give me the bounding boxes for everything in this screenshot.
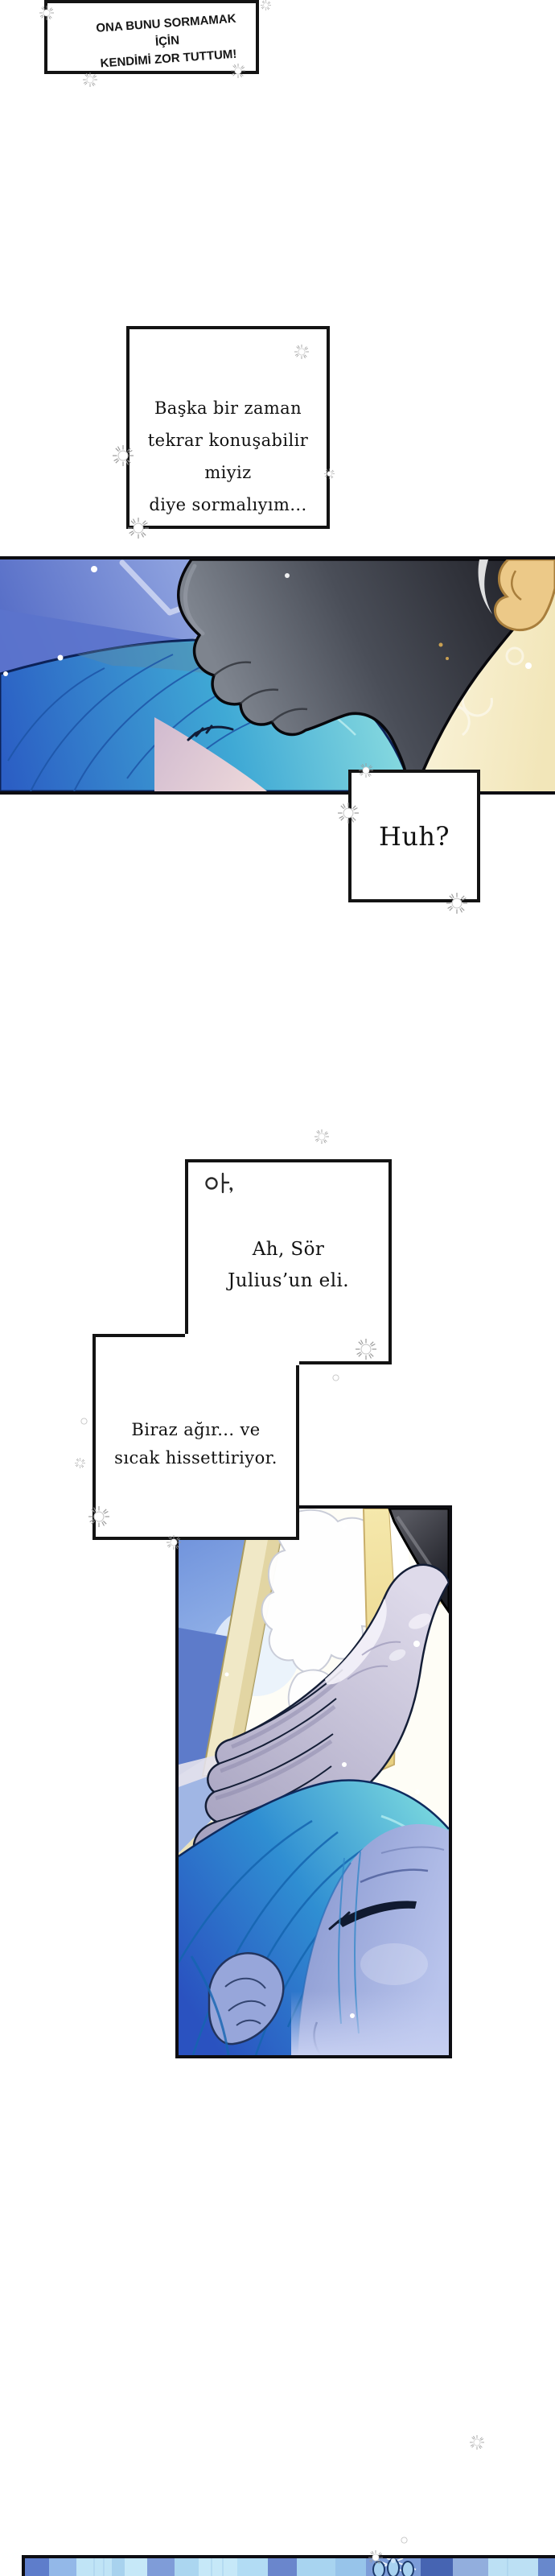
cheek-highlight: [360, 1943, 428, 1985]
thought-julius-text: Ah, Sör Julius’un eli.: [185, 1234, 392, 1297]
sparkle-icon: [80, 1418, 88, 1425]
sparkle-icon: [338, 803, 359, 824]
sparkle-icon: [401, 2537, 408, 2544]
sparkle-icon: [314, 1129, 329, 1144]
panel-3-scene: [25, 2558, 555, 2576]
panel-1-scene: [0, 559, 555, 791]
sparkle-icon: [332, 1374, 339, 1381]
panel-2-artwork: [175, 1505, 452, 2058]
sparkle-icon: [231, 64, 245, 78]
sparkle-icon: [166, 1535, 181, 1550]
sparkle-icon: [359, 763, 373, 778]
sparkle-icon: [294, 345, 309, 359]
dialogue-line: sıcak hissettiriyor.: [92, 1444, 299, 1472]
narration-box: ONA BUNU SORMAMAK İÇİN KENDİMİ ZOR TUTTU…: [44, 0, 259, 74]
dialogue-line: Başka bir zaman: [129, 392, 327, 424]
sparkle-icon: [356, 1339, 376, 1360]
comic-page: ONA BUNU SORMAMAK İÇİN KENDİMİ ZOR TUTTU…: [0, 0, 555, 2576]
sparkle-icon: [470, 2435, 484, 2450]
dialogue-line: Julius’un eli.: [185, 1265, 392, 1297]
bead-top: [391, 2558, 396, 2563]
speech-box-huh: Huh?: [348, 770, 480, 902]
sparkle-icon: [261, 0, 271, 10]
sparkle-icon: [39, 6, 54, 20]
sparkle-icon: [324, 469, 335, 479]
panel-3-artwork: [22, 2555, 555, 2576]
dialogue-line: Huh?: [379, 821, 450, 852]
sparkle-icon: [368, 2550, 383, 2565]
sparkle-icon: [83, 72, 97, 87]
dialogue-line: diye sormalıyım...: [129, 489, 327, 521]
sparkle-icon: [446, 893, 467, 914]
pillow: [291, 1992, 449, 2055]
sparkle-icon: [128, 518, 149, 539]
panel-2-scene: [179, 1509, 449, 2055]
korean-ah-glyph: [204, 1170, 235, 1195]
dress-stripes: [25, 2558, 555, 2576]
bubble-join-patch: [185, 1334, 299, 1365]
dialogue-line: tekrar konuşabilir miyiz: [129, 424, 327, 489]
narration-text: ONA BUNU SORMAMAK İÇİN KENDİMİ ZOR TUTTU…: [45, 0, 257, 76]
sparkle-icon: [113, 445, 134, 466]
dialogue-line: Biraz ağır... ve: [92, 1416, 299, 1444]
sparkle-icon: [75, 1458, 85, 1468]
sparkle-icon: [88, 1506, 109, 1527]
thought-warm-text: Biraz ağır... ve sıcak hissettiriyor.: [92, 1416, 299, 1472]
panel-1-artwork: [0, 556, 555, 795]
dialogue-line: Ah, Sör: [185, 1234, 392, 1265]
